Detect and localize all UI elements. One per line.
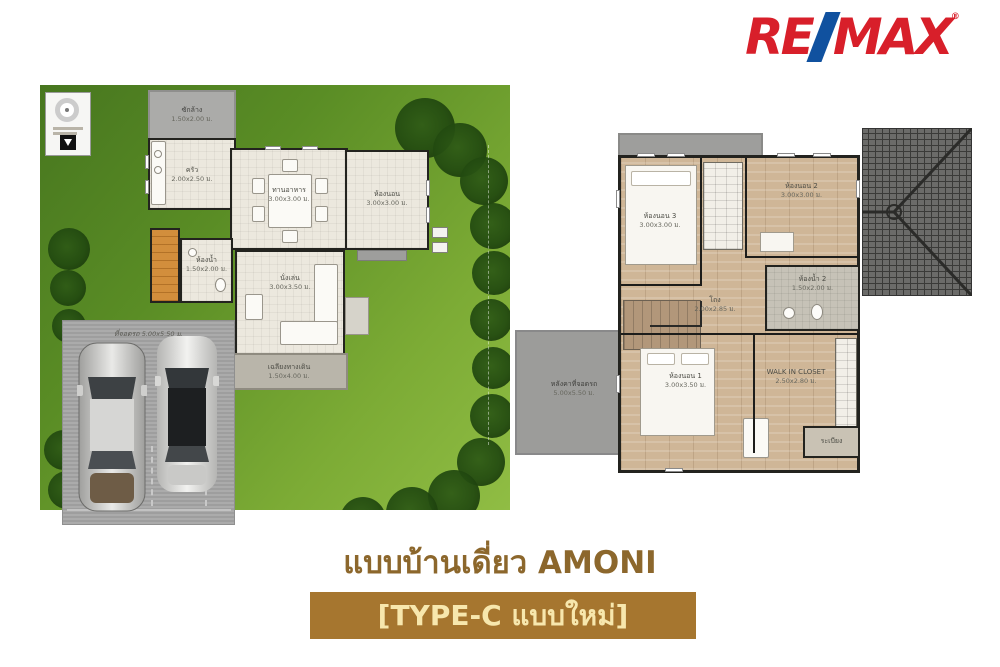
plan-subtitle-box: [TYPE-C แบบใหม่] [310, 592, 696, 639]
plan-title: แบบบ้านเดี่ยว AMONI [250, 545, 750, 582]
ac-unit-icon [432, 227, 448, 238]
room-laundry: ซักล้าง 1.50x2.00 ม. [148, 90, 236, 140]
room-bedroom1: ห้องนอน 1 3.00x3.50 ม. [623, 372, 748, 390]
room-dimension: 1.50x2.00 ม. [182, 265, 231, 274]
compass-icon [45, 92, 91, 156]
tree-icon [460, 157, 508, 205]
room-label: ห้องนอน 3 [644, 212, 677, 220]
car-icon [155, 334, 219, 494]
room-dimension: 3.00x3.50 ม. [623, 381, 748, 390]
second-floor-plan: หลังคาที่จอดรถ 5.00x5.50 ม. ห้องนอน 3 3.… [515, 120, 970, 480]
room-dining: ทานอาหาร 3.00x3.00 ม. [230, 148, 348, 250]
registered-mark: ® [951, 12, 960, 22]
room-terrace: เฉลียงทางเดิน 1.50x4.00 ม. [230, 353, 348, 390]
room-dimension: 2.00x2.50 ม. [150, 175, 234, 184]
window-icon [667, 153, 685, 157]
toilet-icon [811, 304, 823, 320]
carport-roof: หลังคาที่จอดรถ 5.00x5.50 ม. [515, 330, 633, 455]
tree-icon [340, 497, 386, 510]
tree-icon [470, 203, 510, 249]
room-closet: WALK IN CLOSET 2.50x2.80 ม. [755, 368, 837, 386]
wall [700, 158, 702, 286]
room-dimension: 5.00x5.50 ม. [517, 389, 631, 398]
room-dimension: 3.00x3.00 ม. [620, 221, 700, 230]
chair [252, 206, 265, 222]
room-label: นั่งเล่น [280, 274, 300, 282]
room-dimension: 2.50x2.80 ม. [755, 377, 837, 386]
chair [315, 206, 328, 222]
window-icon [616, 190, 620, 208]
room-label: ห้องนอน 1 [669, 372, 702, 380]
room-bedroom2: ห้องนอน 2 3.00x3.00 ม. [745, 182, 858, 200]
room-hall: โถง 2.00x2.85 ม. [665, 296, 765, 314]
tree-icon [472, 347, 510, 389]
bed [640, 348, 715, 436]
tree-icon [50, 270, 86, 306]
page: RE MAX ® [0, 0, 1000, 667]
bench [760, 232, 794, 252]
room-dimension: 2.00x2.85 ม. [665, 305, 765, 314]
wall [753, 335, 755, 453]
compass-dot [65, 108, 69, 112]
tree-icon [470, 299, 510, 341]
wall [745, 256, 858, 258]
room-living: นั่งเล่น 3.00x3.50 ม. [235, 250, 345, 355]
side-porch [345, 297, 369, 335]
room-label: ครัว [186, 166, 198, 174]
room-kitchen: ครัว 2.00x2.50 ม. [148, 138, 236, 210]
room-dimension: 1.50x2.00 ม. [150, 115, 234, 124]
balcony: ระเบียง [803, 426, 860, 458]
entry-step [357, 250, 407, 261]
room-bathroom2: ห้องน้ำ 2 1.50x2.00 ม. [765, 265, 860, 331]
room-label: ห้องนอน 2 [785, 182, 818, 190]
room-label: ระเบียง [821, 437, 843, 445]
north-arrow-icon [60, 135, 76, 150]
sink-icon [783, 307, 795, 319]
lane-marking [151, 446, 153, 506]
window-icon [145, 180, 149, 194]
room-label: ที่จอดรถ [114, 330, 139, 338]
logo-max-text: MAX [833, 12, 951, 62]
room-label: ห้องน้ำ 2 [799, 275, 827, 283]
sink-icon [154, 150, 162, 158]
carport-area: ที่จอดรถ 5.00x5.50 ม. [62, 320, 235, 525]
armchair [245, 294, 263, 320]
toilet-icon [215, 278, 226, 292]
room-label: ห้องนอน [374, 190, 400, 198]
vanity-table [743, 418, 769, 458]
room-dimension: 3.00x3.50 ม. [237, 283, 343, 292]
plan-subtitle: [TYPE-C แบบใหม่] [378, 594, 629, 638]
room-label: ห้องน้ำ [196, 256, 217, 264]
wardrobe [703, 162, 743, 250]
room-dimension: 1.50x4.00 ม. [232, 372, 346, 381]
room-label: หลังคาที่จอดรถ [551, 380, 597, 388]
room-bedroom3: ห้องนอน 3 3.00x3.00 ม. [620, 212, 700, 230]
ground-floor-plan: ซักล้าง 1.50x2.00 ม. ครัว 2.00x2.50 ม. [40, 85, 510, 545]
room-label: เฉลียงทางเดิน [268, 363, 311, 371]
room-label: ซักล้าง [182, 106, 203, 114]
car-icon [77, 341, 147, 513]
room-dimension: 3.00x3.00 ม. [745, 191, 858, 200]
room-dimension: 1.50x2.00 ม. [767, 284, 858, 293]
ac-unit-icon [432, 242, 448, 253]
room-dimension: 3.00x3.00 ม. [347, 199, 427, 208]
roof [862, 128, 972, 296]
logo-re-text: RE [745, 12, 812, 62]
window-icon [813, 153, 831, 157]
window-icon [426, 207, 430, 223]
boundary-dashed-line [488, 145, 489, 445]
window-icon [777, 153, 795, 157]
window-icon [302, 146, 318, 150]
tree-icon [472, 251, 510, 295]
window-icon [665, 468, 683, 472]
room-label: WALK IN CLOSET [767, 368, 826, 376]
wall [621, 284, 702, 286]
tree-icon [48, 228, 90, 270]
remax-logo: RE MAX ® [710, 6, 995, 68]
room-bathroom: ห้องน้ำ 1.50x2.00 ม. [180, 238, 233, 303]
chair [282, 159, 298, 172]
compass-text-bar [53, 127, 83, 130]
wall [745, 158, 747, 258]
wall [621, 333, 858, 335]
window-icon [145, 155, 149, 169]
stairs [150, 228, 180, 303]
sofa [280, 321, 338, 345]
room-label: ทานอาหาร [272, 186, 306, 194]
room-dimension: 3.00x3.00 ม. [232, 195, 346, 204]
tree-icon [470, 394, 510, 438]
room-bedroom: ห้องนอน 3.00x3.00 ม. [345, 150, 429, 250]
room-label: โถง [709, 296, 720, 304]
window-icon [265, 146, 281, 150]
window-icon [637, 153, 655, 157]
chair [282, 230, 298, 243]
